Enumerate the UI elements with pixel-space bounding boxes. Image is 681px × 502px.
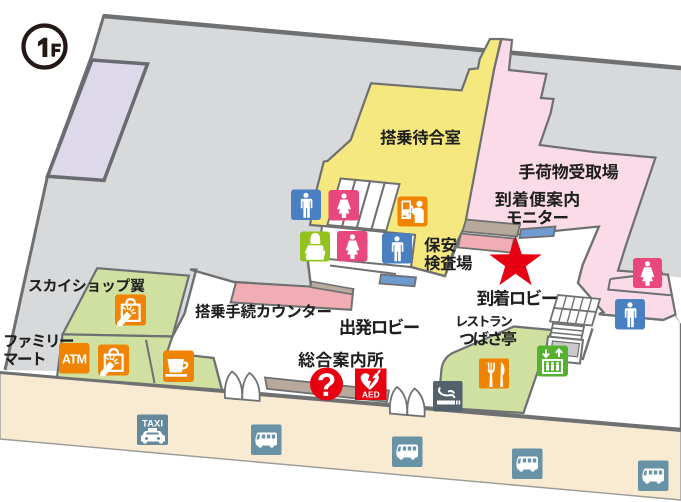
svg-text:ATM: ATM (62, 353, 87, 367)
svg-text:AED: AED (362, 390, 380, 400)
svg-text:?: ? (317, 367, 337, 403)
svg-text:TAXI: TAXI (142, 419, 163, 430)
